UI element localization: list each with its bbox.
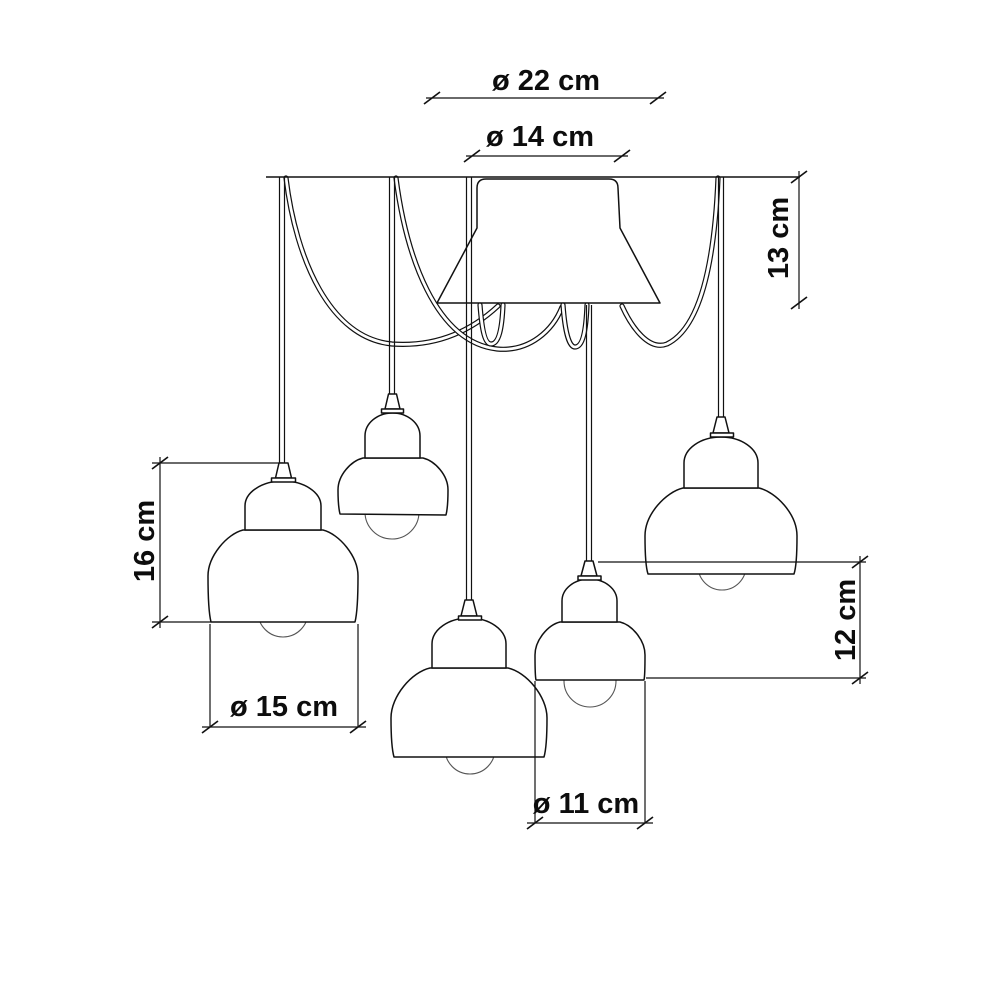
cord-grip-cap — [382, 409, 404, 413]
lamp-shade-dome — [432, 618, 506, 668]
dim-label-small-shade-diameter: ø 11 cm — [533, 788, 639, 820]
ceiling-canopy — [437, 179, 660, 303]
cord-grip-cap — [272, 478, 296, 482]
lamp-shade-bell — [645, 488, 797, 574]
dim-label-canopy-height: 13 cm — [763, 197, 795, 279]
pendant-lamp-small-upper — [338, 394, 448, 539]
dim-label-small-shade-height: 12 cm — [830, 579, 862, 661]
pendant-lamp-center-large — [391, 600, 547, 774]
chandelier-dimension-drawing: ø 22 cm ø 14 cm 13 cm 16 cm ø 15 cm 12 c… — [0, 0, 1000, 1000]
cord-grip-cap — [711, 433, 734, 437]
lamp-shade-dome — [245, 481, 321, 530]
lamp-shade-dome — [684, 437, 758, 488]
pendant-lamp-right-large — [645, 417, 797, 590]
technical-drawing-page: ø 22 cm ø 14 cm 13 cm 16 cm ø 15 cm 12 c… — [0, 0, 1000, 1000]
cord-grip-cone — [713, 417, 729, 433]
lamp-shade-dome — [562, 579, 617, 622]
dim-label-large-shade-height: 16 cm — [129, 500, 161, 582]
dim-label-large-shade-diameter: ø 15 cm — [230, 691, 338, 723]
cord-grip-cone — [385, 394, 400, 409]
dim-label-canopy-diameter: ø 14 cm — [486, 121, 594, 153]
cord-grip-cone — [581, 561, 597, 576]
lamp-shade-bell — [535, 622, 645, 680]
cord-grip-cap — [459, 616, 482, 620]
lamp-shade-bell — [338, 458, 448, 515]
cord-grip-cone — [461, 600, 477, 616]
pendant-lamp-left-large — [208, 463, 358, 637]
lamp-shade-bell — [391, 668, 547, 757]
lamp-shade-bell — [208, 530, 358, 622]
lamp-shade-dome — [365, 413, 420, 458]
cord-grip-cap — [578, 576, 601, 580]
pendant-lamp-center-small — [535, 561, 645, 707]
cord-grip-cone — [276, 463, 292, 478]
dim-label-canopy-top-span: ø 22 cm — [492, 65, 600, 97]
